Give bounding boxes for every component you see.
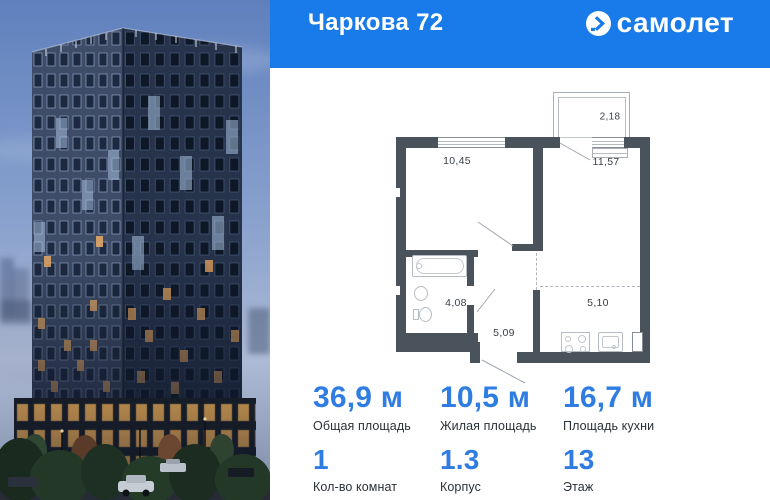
stove-icon (561, 332, 590, 352)
stat-total-area: 36,9 м Общая площадь (313, 383, 411, 433)
stat-value: 10,5 м (440, 383, 537, 413)
area-label-hallway: 5,09 (493, 327, 515, 339)
listing-card[interactable]: Чаркова 72 самолет (0, 0, 770, 500)
stat-building: 1.3 Корпус (440, 446, 481, 494)
toilet-icon (413, 307, 433, 322)
brand-logo: самолет (586, 9, 734, 37)
stat-value: 1 (313, 446, 397, 474)
bathtub-icon (412, 255, 467, 277)
stat-label: Жилая площадь (440, 419, 537, 433)
stat-label: Кол-во комнат (313, 480, 397, 494)
floor-plan: 2,18 10,45 11,57 4,08 5,09 5,10 (395, 90, 655, 390)
stat-label: Этаж (563, 480, 595, 494)
stat-value: 13 (563, 446, 595, 474)
building-photo (0, 0, 270, 500)
project-title: Чаркова 72 (308, 9, 443, 37)
area-label-bathroom: 4,08 (445, 297, 467, 309)
brand-wordmark: самолет (617, 9, 734, 37)
info-panel: Чаркова 72 самолет (270, 0, 770, 500)
kitchen-sink-icon (598, 332, 623, 352)
area-label-balcony: 2,18 (600, 112, 621, 123)
stat-label: Площадь кухни (563, 419, 654, 433)
stat-label: Корпус (440, 480, 481, 494)
stat-value: 36,9 м (313, 383, 411, 413)
stat-value: 16,7 м (563, 383, 654, 413)
area-label-kitchen-living: 11,57 (593, 156, 620, 168)
stat-living-area: 10,5 м Жилая площадь (440, 383, 537, 433)
washbasin-icon (414, 286, 428, 301)
area-label-kitchen-zone: 5,10 (587, 297, 609, 309)
stat-rooms: 1 Кол-во комнат (313, 446, 397, 494)
stat-kitchen-area: 16,7 м Площадь кухни (563, 383, 654, 433)
samolet-arrow-squircle-icon (586, 11, 611, 36)
stat-floor: 13 Этаж (563, 446, 595, 494)
stat-label: Общая площадь (313, 419, 411, 433)
header-bar: Чаркова 72 самолет (270, 0, 770, 68)
stat-value: 1.3 (440, 446, 481, 474)
area-label-living: 10,45 (443, 155, 471, 167)
tower (32, 28, 242, 462)
